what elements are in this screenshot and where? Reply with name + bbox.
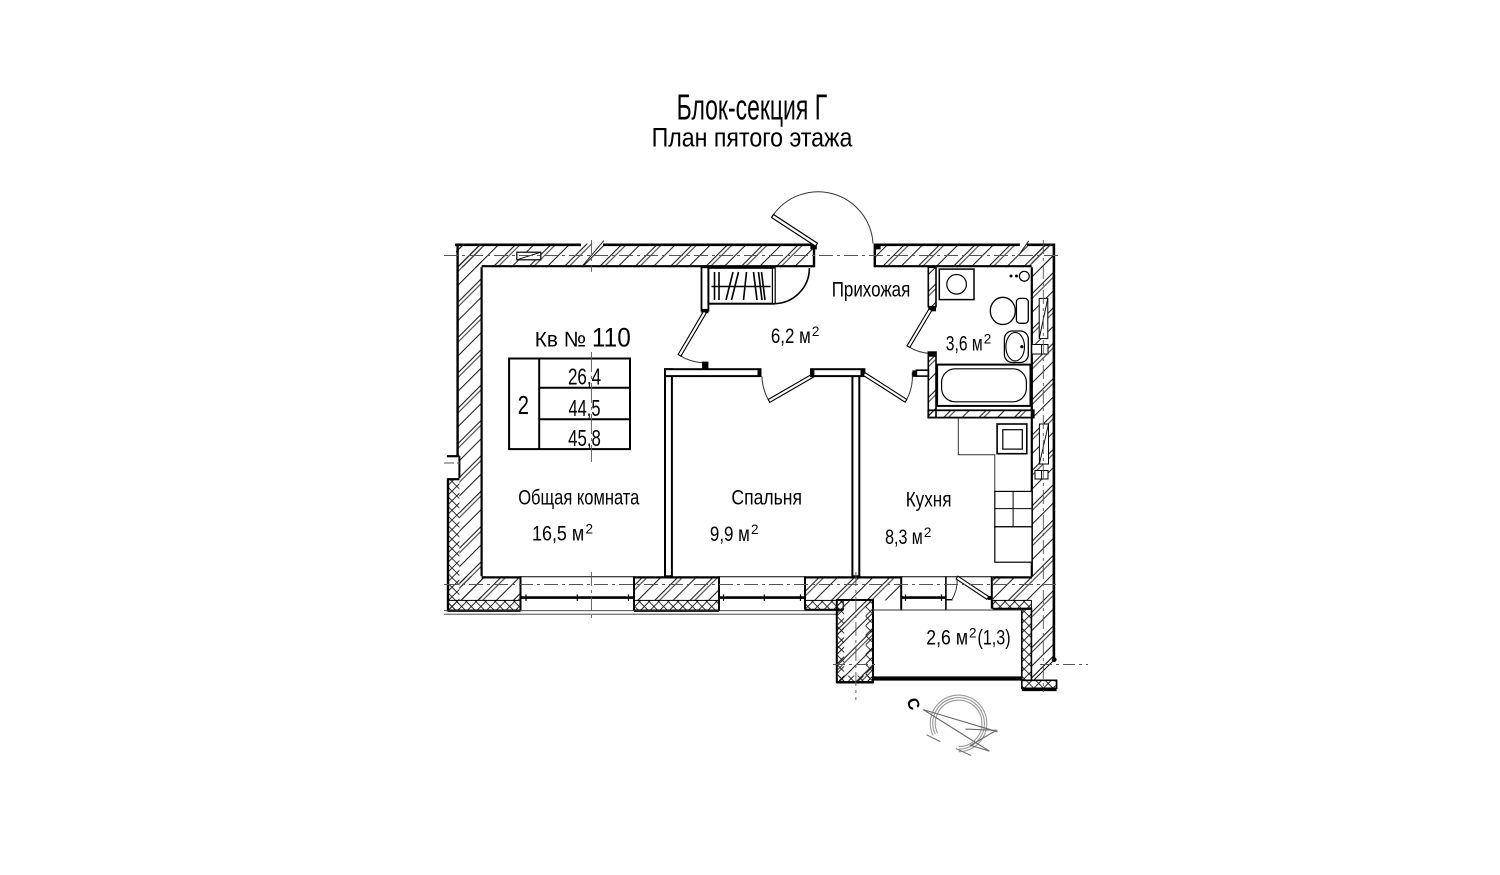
svg-text:16,5 м: 16,5 м [532,523,584,546]
svg-text:3,6 м: 3,6 м [946,333,983,356]
svg-text:2: 2 [586,522,594,537]
svg-text:2: 2 [518,392,529,420]
svg-text:26,4: 26,4 [568,364,601,390]
svg-text:2: 2 [751,522,759,537]
svg-text:2: 2 [984,332,992,347]
svg-text:8,3 м: 8,3 м [885,526,923,549]
svg-text:(1,3): (1,3) [978,627,1011,650]
svg-text:2: 2 [924,525,932,540]
svg-text:Кухня: Кухня [906,488,952,511]
svg-text:44,5: 44,5 [569,395,601,421]
svg-text:2: 2 [812,324,820,339]
svg-text:Общая комната: Общая комната [518,486,639,509]
svg-text:2,6 м: 2,6 м [926,627,968,650]
svg-text:9,9 м: 9,9 м [710,523,750,546]
svg-text:45,8: 45,8 [568,425,601,451]
svg-text:2: 2 [969,626,977,641]
svg-text:110: 110 [592,323,631,353]
svg-text:План пятого этажа: План пятого этажа [652,122,853,152]
svg-text:6,2 м: 6,2 м [771,325,811,348]
svg-text:Спальня: Спальня [731,486,802,509]
svg-text:Прихожая: Прихожая [832,279,911,302]
svg-text:Блок-секция Г: Блок-секция Г [677,86,828,127]
svg-text:Кв №: Кв № [535,328,586,352]
